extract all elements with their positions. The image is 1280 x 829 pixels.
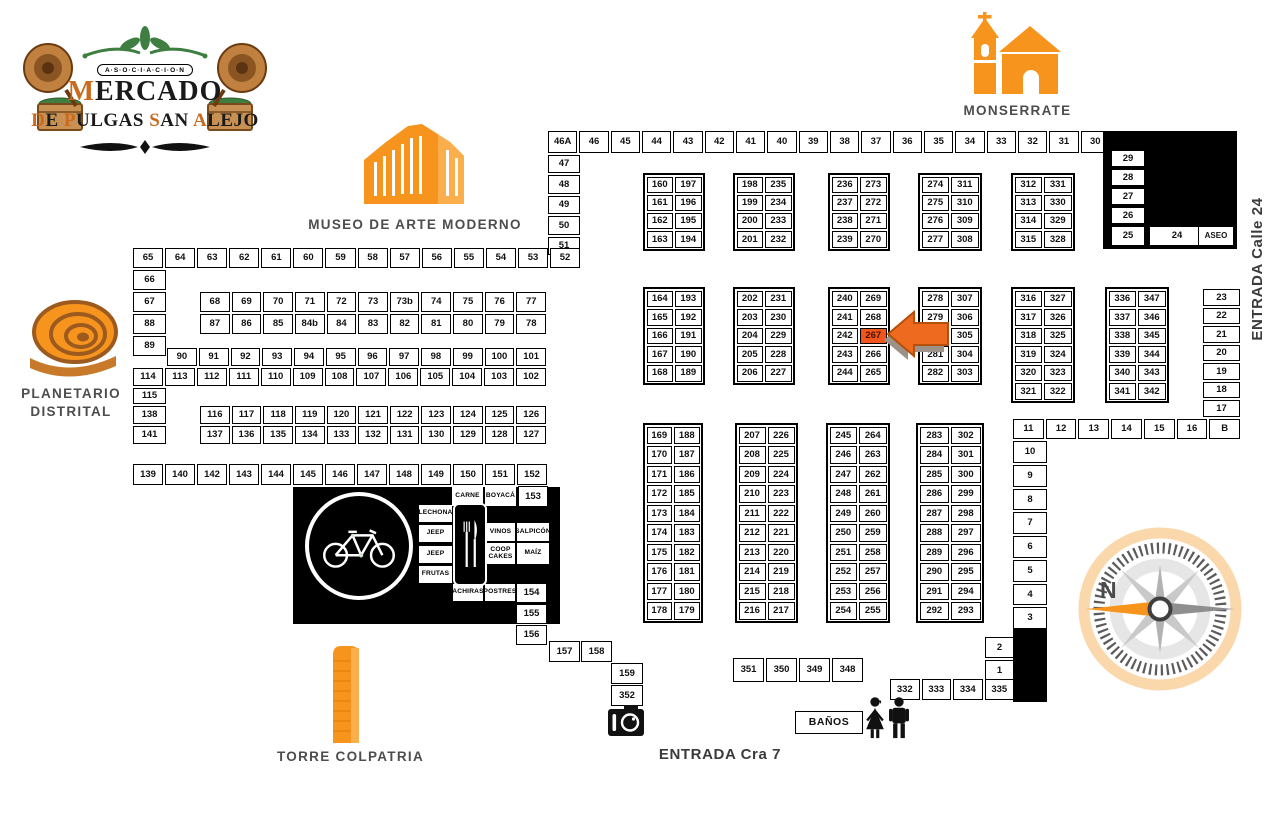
stall-283: 283 (920, 427, 950, 445)
stall-344: 344 (1138, 346, 1166, 363)
stall-col-23: 23222120191817 (1203, 289, 1240, 417)
stall-342: 342 (1138, 383, 1166, 400)
stall-258: 258 (859, 544, 887, 562)
stall-256: 256 (859, 583, 887, 601)
stall-94: 94 (294, 348, 324, 366)
stall-326: 326 (1044, 309, 1072, 326)
stall-aseo: ASEO (1198, 226, 1234, 246)
stall-130: 130 (421, 426, 451, 444)
stall-183: 183 (674, 524, 700, 542)
stall-67: 67 (133, 292, 166, 312)
stall-31: 31 (1049, 131, 1078, 153)
stall-81: 81 (421, 314, 451, 334)
stall-161: 161 (647, 195, 674, 211)
market-map: A·S·O·C·I·A·C·I·O·N MERCADO DE PULGAS SA… (0, 0, 1280, 829)
stall-155: 155 (516, 604, 547, 624)
stall-103: 103 (484, 368, 514, 386)
stall-row-351: 351350349348 (733, 658, 863, 682)
stall-125: 125 (485, 406, 515, 424)
stall-158: 158 (581, 641, 612, 662)
stall-254: 254 (830, 602, 858, 620)
stall-121: 121 (358, 406, 388, 424)
stall-124: 124 (453, 406, 483, 424)
stall-273: 273 (860, 177, 887, 193)
stall-225: 225 (768, 446, 795, 464)
stall-271: 271 (860, 213, 887, 229)
stall-20: 20 (1203, 345, 1240, 362)
stall-262: 262 (859, 466, 887, 484)
stall-220: 220 (768, 544, 795, 562)
stall-56: 56 (422, 248, 452, 268)
stall-112: 112 (197, 368, 227, 386)
stall-216: 216 (739, 602, 766, 620)
stall-block-236: 236273237272238271239270 (828, 173, 890, 251)
stall-61: 61 (261, 248, 291, 268)
stall-185: 185 (674, 485, 700, 503)
stall-73: 73 (358, 292, 388, 312)
stall-97: 97 (389, 348, 419, 366)
food-label-jeep-2: JEEP (419, 546, 452, 563)
stall-105: 105 (420, 368, 450, 386)
stall-274: 274 (922, 177, 950, 193)
stall-201: 201 (737, 231, 764, 247)
stall-345: 345 (1138, 328, 1166, 345)
stall-84b: 84b (295, 314, 325, 334)
stall-291: 291 (920, 583, 950, 601)
museum-icon (356, 112, 472, 208)
stall-block-169: 1691881701871711861721851731841741831751… (643, 423, 703, 623)
stall-110: 110 (261, 368, 291, 386)
stall-177: 177 (647, 583, 673, 601)
label-torre: TORRE COLPATRIA (268, 749, 433, 764)
stall-200: 200 (737, 213, 764, 229)
stall-131: 131 (390, 426, 420, 444)
stall-17: 17 (1203, 400, 1240, 417)
stall-12: 12 (1046, 419, 1077, 439)
stall-337: 337 (1109, 309, 1137, 326)
stall-277: 277 (922, 231, 950, 247)
stall-43: 43 (673, 131, 702, 153)
stall-207: 207 (739, 427, 766, 445)
stall-266: 266 (860, 346, 887, 363)
label-entrada-cra7: ENTRADA Cra 7 (640, 746, 800, 763)
stall-25: 25 (1111, 226, 1145, 246)
stall-115: 115 (133, 388, 166, 404)
stall-237: 237 (832, 195, 859, 211)
utensils-panel (453, 503, 487, 586)
stall-89: 89 (133, 336, 166, 356)
stall-92: 92 (231, 348, 261, 366)
stall-248: 248 (830, 485, 858, 503)
stall-231: 231 (765, 291, 792, 308)
stall-213: 213 (739, 544, 766, 562)
stall-230: 230 (765, 309, 792, 326)
stall-13: 13 (1078, 419, 1109, 439)
stall-106: 106 (388, 368, 418, 386)
stall-75: 75 (453, 292, 483, 312)
stall-47: 47 (548, 155, 580, 173)
stall-60: 60 (293, 248, 323, 268)
stall-241: 241 (832, 309, 859, 326)
stall-308: 308 (951, 231, 979, 247)
stall-257: 257 (859, 563, 887, 581)
stall-304: 304 (951, 346, 979, 363)
stall-136: 136 (232, 426, 262, 444)
stall-23: 23 (1203, 289, 1240, 306)
stall-246: 246 (830, 446, 858, 464)
label-planetario-line1: PLANETARIO (5, 386, 137, 401)
stall-80: 80 (453, 314, 483, 334)
stall-235: 235 (765, 177, 792, 193)
stall-199: 199 (737, 195, 764, 211)
stall-171: 171 (647, 466, 673, 484)
logo-subtitle: DE PULGAS SAN ALEJO (22, 110, 268, 132)
stall-57: 57 (390, 248, 420, 268)
stall-83: 83 (358, 314, 388, 334)
stall-143: 143 (229, 464, 259, 485)
stall-block-207: 2072262082252092242102232112222122212132… (735, 423, 798, 623)
stall-204: 204 (737, 328, 764, 345)
stall-144: 144 (261, 464, 291, 485)
stall-85: 85 (263, 314, 293, 334)
stall-54: 54 (486, 248, 516, 268)
stall-309: 309 (951, 213, 979, 229)
stall-70: 70 (263, 292, 293, 312)
stall-343: 343 (1138, 365, 1166, 382)
stall-192: 192 (675, 309, 702, 326)
stall-21: 21 (1203, 326, 1240, 343)
stall-250: 250 (830, 524, 858, 542)
stall-73b: 73b (390, 292, 420, 312)
stall-79: 79 (485, 314, 515, 334)
stall-333: 333 (922, 679, 952, 700)
stall-211: 211 (739, 505, 766, 523)
stall-275: 275 (922, 195, 950, 211)
stall-321: 321 (1015, 383, 1043, 400)
stall-341: 341 (1109, 383, 1137, 400)
stall-339: 339 (1109, 346, 1137, 363)
stall-139: 139 (133, 464, 163, 485)
stall-row-139: 139140142143144145146147148149150151152 (133, 464, 547, 485)
stall-block-336: 336347337346338345339344340343341342 (1105, 287, 1169, 403)
stall-148: 148 (389, 464, 419, 485)
stall-303: 303 (951, 365, 979, 382)
stall-193: 193 (675, 291, 702, 308)
stall-76: 76 (485, 292, 515, 312)
stall-row-65: 6564636261605958575655545352 (133, 248, 580, 268)
stall-41: 41 (736, 131, 765, 153)
stall-137: 137 (200, 426, 230, 444)
stall-229: 229 (765, 328, 792, 345)
label-planetario-line2: DISTRITAL (5, 404, 137, 419)
stall-row-90: 90919293949596979899100101 (167, 348, 546, 366)
stall-block-240: 240269241268242267243266244265 (828, 287, 890, 385)
stall-48: 48 (548, 175, 580, 193)
stall-188: 188 (674, 427, 700, 445)
stall-138: 138 (133, 406, 166, 424)
stall-11: 11 (1013, 419, 1044, 439)
stall-249: 249 (830, 505, 858, 523)
stall-351: 351 (733, 658, 764, 682)
stall-202: 202 (737, 291, 764, 308)
stall-165: 165 (647, 309, 674, 326)
stall-102: 102 (516, 368, 546, 386)
stall-212: 212 (739, 524, 766, 542)
utensils-icon (459, 511, 481, 579)
stall-180: 180 (674, 583, 700, 601)
stall-324: 324 (1044, 346, 1072, 363)
stall-295: 295 (951, 563, 981, 581)
stall-52: 52 (550, 248, 580, 268)
stall-row-11: 111213141516B (1013, 419, 1240, 439)
stall-301: 301 (951, 446, 981, 464)
stall-238: 238 (832, 213, 859, 229)
stall-328: 328 (1044, 231, 1072, 247)
stall-90: 90 (167, 348, 197, 366)
stall-126: 126 (516, 406, 546, 424)
stall-24: 24 (1149, 226, 1205, 246)
stall-184: 184 (674, 505, 700, 523)
stall-row-114: 114113112111110109108107106105104103102 (133, 368, 546, 386)
stall-156: 156 (516, 625, 547, 645)
stall-140: 140 (165, 464, 195, 485)
stall-block-198: 198235199234200233201232 (733, 173, 795, 251)
stall-36: 36 (893, 131, 922, 153)
stall-87: 87 (200, 314, 230, 334)
stall-236: 236 (832, 177, 859, 193)
stall-107: 107 (356, 368, 386, 386)
stall-265: 265 (860, 365, 887, 382)
stall-50: 50 (548, 216, 580, 234)
stall-59: 59 (325, 248, 355, 268)
stall-289: 289 (920, 544, 950, 562)
stall-232: 232 (765, 231, 792, 247)
stall-82: 82 (390, 314, 420, 334)
stall-133: 133 (327, 426, 357, 444)
stall-198: 198 (737, 177, 764, 193)
stall-263: 263 (859, 446, 887, 464)
stall-135: 135 (263, 426, 293, 444)
stall-100: 100 (485, 348, 515, 366)
food-label-jeep-1: JEEP (419, 525, 452, 542)
stall-210: 210 (739, 485, 766, 503)
stall-32: 32 (1018, 131, 1047, 153)
stall-45: 45 (611, 131, 640, 153)
stall-350: 350 (766, 658, 797, 682)
stall-299: 299 (951, 485, 981, 503)
stall-330: 330 (1044, 195, 1072, 211)
stall-264: 264 (859, 427, 887, 445)
stall-170: 170 (647, 446, 673, 464)
food-label-frutas: FRUTAS (419, 566, 452, 583)
stall-300: 300 (951, 466, 981, 484)
stall-191: 191 (675, 328, 702, 345)
stall-28: 28 (1111, 169, 1145, 186)
stall-282: 282 (922, 365, 950, 382)
stall-row-top: 46A4645444342414039383736353433323130 (548, 131, 1110, 153)
stall-22: 22 (1203, 308, 1240, 325)
stall-46a: 46A (548, 131, 577, 153)
stall-322: 322 (1044, 383, 1072, 400)
stall-10: 10 (1013, 441, 1047, 463)
stall-223: 223 (768, 485, 795, 503)
church-icon (953, 8, 1065, 94)
stall-320: 320 (1015, 365, 1043, 382)
stall-261: 261 (859, 485, 887, 503)
stall-176: 176 (647, 563, 673, 581)
stall-134: 134 (295, 426, 325, 444)
stall-b: B (1209, 419, 1240, 439)
stall-71: 71 (295, 292, 325, 312)
stall-99: 99 (453, 348, 483, 366)
stall-296: 296 (951, 544, 981, 562)
leaf-flourish-icon (80, 26, 210, 62)
scroll-flourish-icon (74, 138, 216, 156)
stall-313: 313 (1015, 195, 1043, 211)
stall-42: 42 (705, 131, 734, 153)
man-icon (886, 697, 912, 742)
stall-119: 119 (295, 406, 325, 424)
stall-157: 157 (549, 641, 580, 662)
stall-113: 113 (165, 368, 195, 386)
stall-288: 288 (920, 524, 950, 542)
stall-block-283: 2833022843012853002862992872982882972892… (916, 423, 984, 623)
stall-3: 3 (1013, 607, 1047, 629)
stall-162: 162 (647, 213, 674, 229)
stall-276: 276 (922, 213, 950, 229)
stall-block-160: 160197161196162195163194 (643, 173, 705, 251)
stall-77: 77 (516, 292, 546, 312)
food-label-vinos: VINOS (486, 523, 515, 541)
stall-129: 129 (453, 426, 483, 444)
stall-141: 141 (133, 426, 166, 444)
compass-icon: N (1076, 518, 1244, 700)
stall-111: 111 (229, 368, 259, 386)
stall-331: 331 (1044, 177, 1072, 193)
stall-84: 84 (327, 314, 357, 334)
stall-215: 215 (739, 583, 766, 601)
stall-7: 7 (1013, 512, 1047, 534)
stall-338: 338 (1109, 328, 1137, 345)
stall-247: 247 (830, 466, 858, 484)
stall-153: 153 (518, 486, 548, 507)
stall-329: 329 (1044, 213, 1072, 229)
planetarium-icon (20, 296, 120, 382)
stall-245: 245 (830, 427, 858, 445)
stall-260: 260 (859, 505, 887, 523)
stall-col-10: 109876543 (1013, 441, 1047, 629)
stall-267: 267 (860, 328, 887, 345)
stall-190: 190 (675, 346, 702, 363)
stall-65: 65 (133, 248, 163, 268)
stall-243: 243 (832, 346, 859, 363)
stall-18: 18 (1203, 382, 1240, 399)
stall-150: 150 (453, 464, 483, 485)
stall-287: 287 (920, 505, 950, 523)
stall-214: 214 (739, 563, 766, 581)
stall-221: 221 (768, 524, 795, 542)
stall-187: 187 (674, 446, 700, 464)
stall-86: 86 (232, 314, 262, 334)
stall-259: 259 (859, 524, 887, 542)
stall-219: 219 (768, 563, 795, 581)
stall-14: 14 (1111, 419, 1142, 439)
stall-166: 166 (647, 328, 674, 345)
stall-145: 145 (293, 464, 323, 485)
stall-col-47: 4748495051 (548, 155, 580, 255)
stall-173: 173 (647, 505, 673, 523)
stall-38: 38 (830, 131, 859, 153)
stall-78: 78 (516, 314, 546, 334)
stall-189: 189 (675, 365, 702, 382)
stall-row-137: 137136135134133132131130129128127 (200, 426, 546, 444)
stall-26: 26 (1111, 207, 1145, 224)
stall-9: 9 (1013, 465, 1047, 487)
food-label-boyaca: BOYACÁ (485, 487, 516, 506)
corner-block: 29282726 25 24 ASEO (1103, 131, 1237, 249)
stall-160: 160 (647, 177, 674, 193)
bicycle-icon (320, 521, 398, 571)
label-museo: MUSEO DE ARTE MODERNO (295, 217, 535, 232)
stall-269: 269 (860, 291, 887, 308)
stall-285: 285 (920, 466, 950, 484)
stall-62: 62 (229, 248, 259, 268)
stall-179: 179 (674, 602, 700, 620)
stall-37: 37 (861, 131, 890, 153)
stall-340: 340 (1109, 365, 1137, 382)
stall-292: 292 (920, 602, 950, 620)
stall-297: 297 (951, 524, 981, 542)
stall-64: 64 (165, 248, 195, 268)
stall-44: 44 (642, 131, 671, 153)
stall-row-116: 116117118119120121122123124125126 (200, 406, 546, 424)
stall-46: 46 (579, 131, 608, 153)
label-monserrate: MONSERRATE (935, 103, 1100, 118)
stall-88: 88 (133, 314, 166, 334)
stall-195: 195 (675, 213, 702, 229)
stall-55: 55 (454, 248, 484, 268)
stall-242: 242 (832, 328, 859, 345)
stall-40: 40 (767, 131, 796, 153)
stall-127: 127 (516, 426, 546, 444)
stall-col-66: 66678889 (133, 270, 166, 356)
stall-315: 315 (1015, 231, 1043, 247)
stall-234: 234 (765, 195, 792, 211)
stall-307: 307 (951, 291, 979, 308)
compass-north-label: N (1100, 577, 1117, 603)
stall-29: 29 (1111, 150, 1145, 167)
stall-240: 240 (832, 291, 859, 308)
stall-6: 6 (1013, 536, 1047, 558)
stall-174: 174 (647, 524, 673, 542)
stall-63: 63 (197, 248, 227, 268)
stall-226: 226 (768, 427, 795, 445)
stall-row-87: 87868584b84838281807978 (200, 314, 546, 334)
stall-310: 310 (951, 195, 979, 211)
stall-270: 270 (860, 231, 887, 247)
stall-218: 218 (768, 583, 795, 601)
food-label-salpicon: SALPICÓN (517, 523, 549, 541)
stall-305: 305 (951, 328, 979, 345)
stall-312: 312 (1015, 177, 1043, 193)
stall-block-316: 316327317326318325319324320323321322 (1011, 287, 1075, 403)
stall-293: 293 (951, 602, 981, 620)
stall-318: 318 (1015, 328, 1043, 345)
bicycle-badge (305, 492, 413, 600)
stall-164: 164 (647, 291, 674, 308)
stall-272: 272 (860, 195, 887, 211)
stall-154: 154 (516, 583, 547, 603)
